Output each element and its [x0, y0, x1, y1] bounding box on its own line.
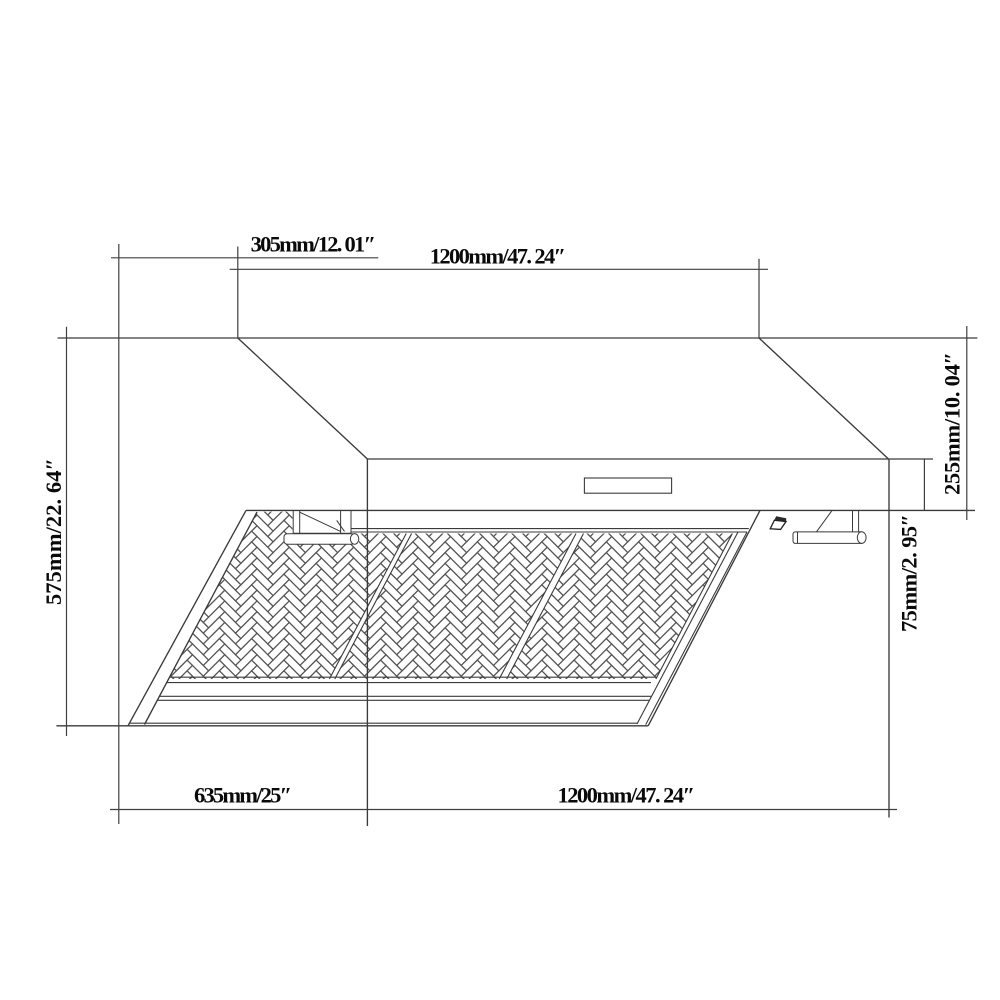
svg-text:575mm/22. 64″: 575mm/22. 64″: [41, 458, 66, 605]
svg-text:1200mm/47. 24″: 1200mm/47. 24″: [430, 244, 566, 269]
svg-text:75mm/2. 95″: 75mm/2. 95″: [897, 514, 922, 632]
svg-text:305mm/12. 01″: 305mm/12. 01″: [251, 232, 376, 257]
svg-text:1200mm/47. 24″: 1200mm/47. 24″: [558, 783, 696, 808]
svg-text:635mm/25″: 635mm/25″: [194, 783, 292, 808]
svg-text:255mm/10. 04″: 255mm/10. 04″: [940, 352, 965, 495]
